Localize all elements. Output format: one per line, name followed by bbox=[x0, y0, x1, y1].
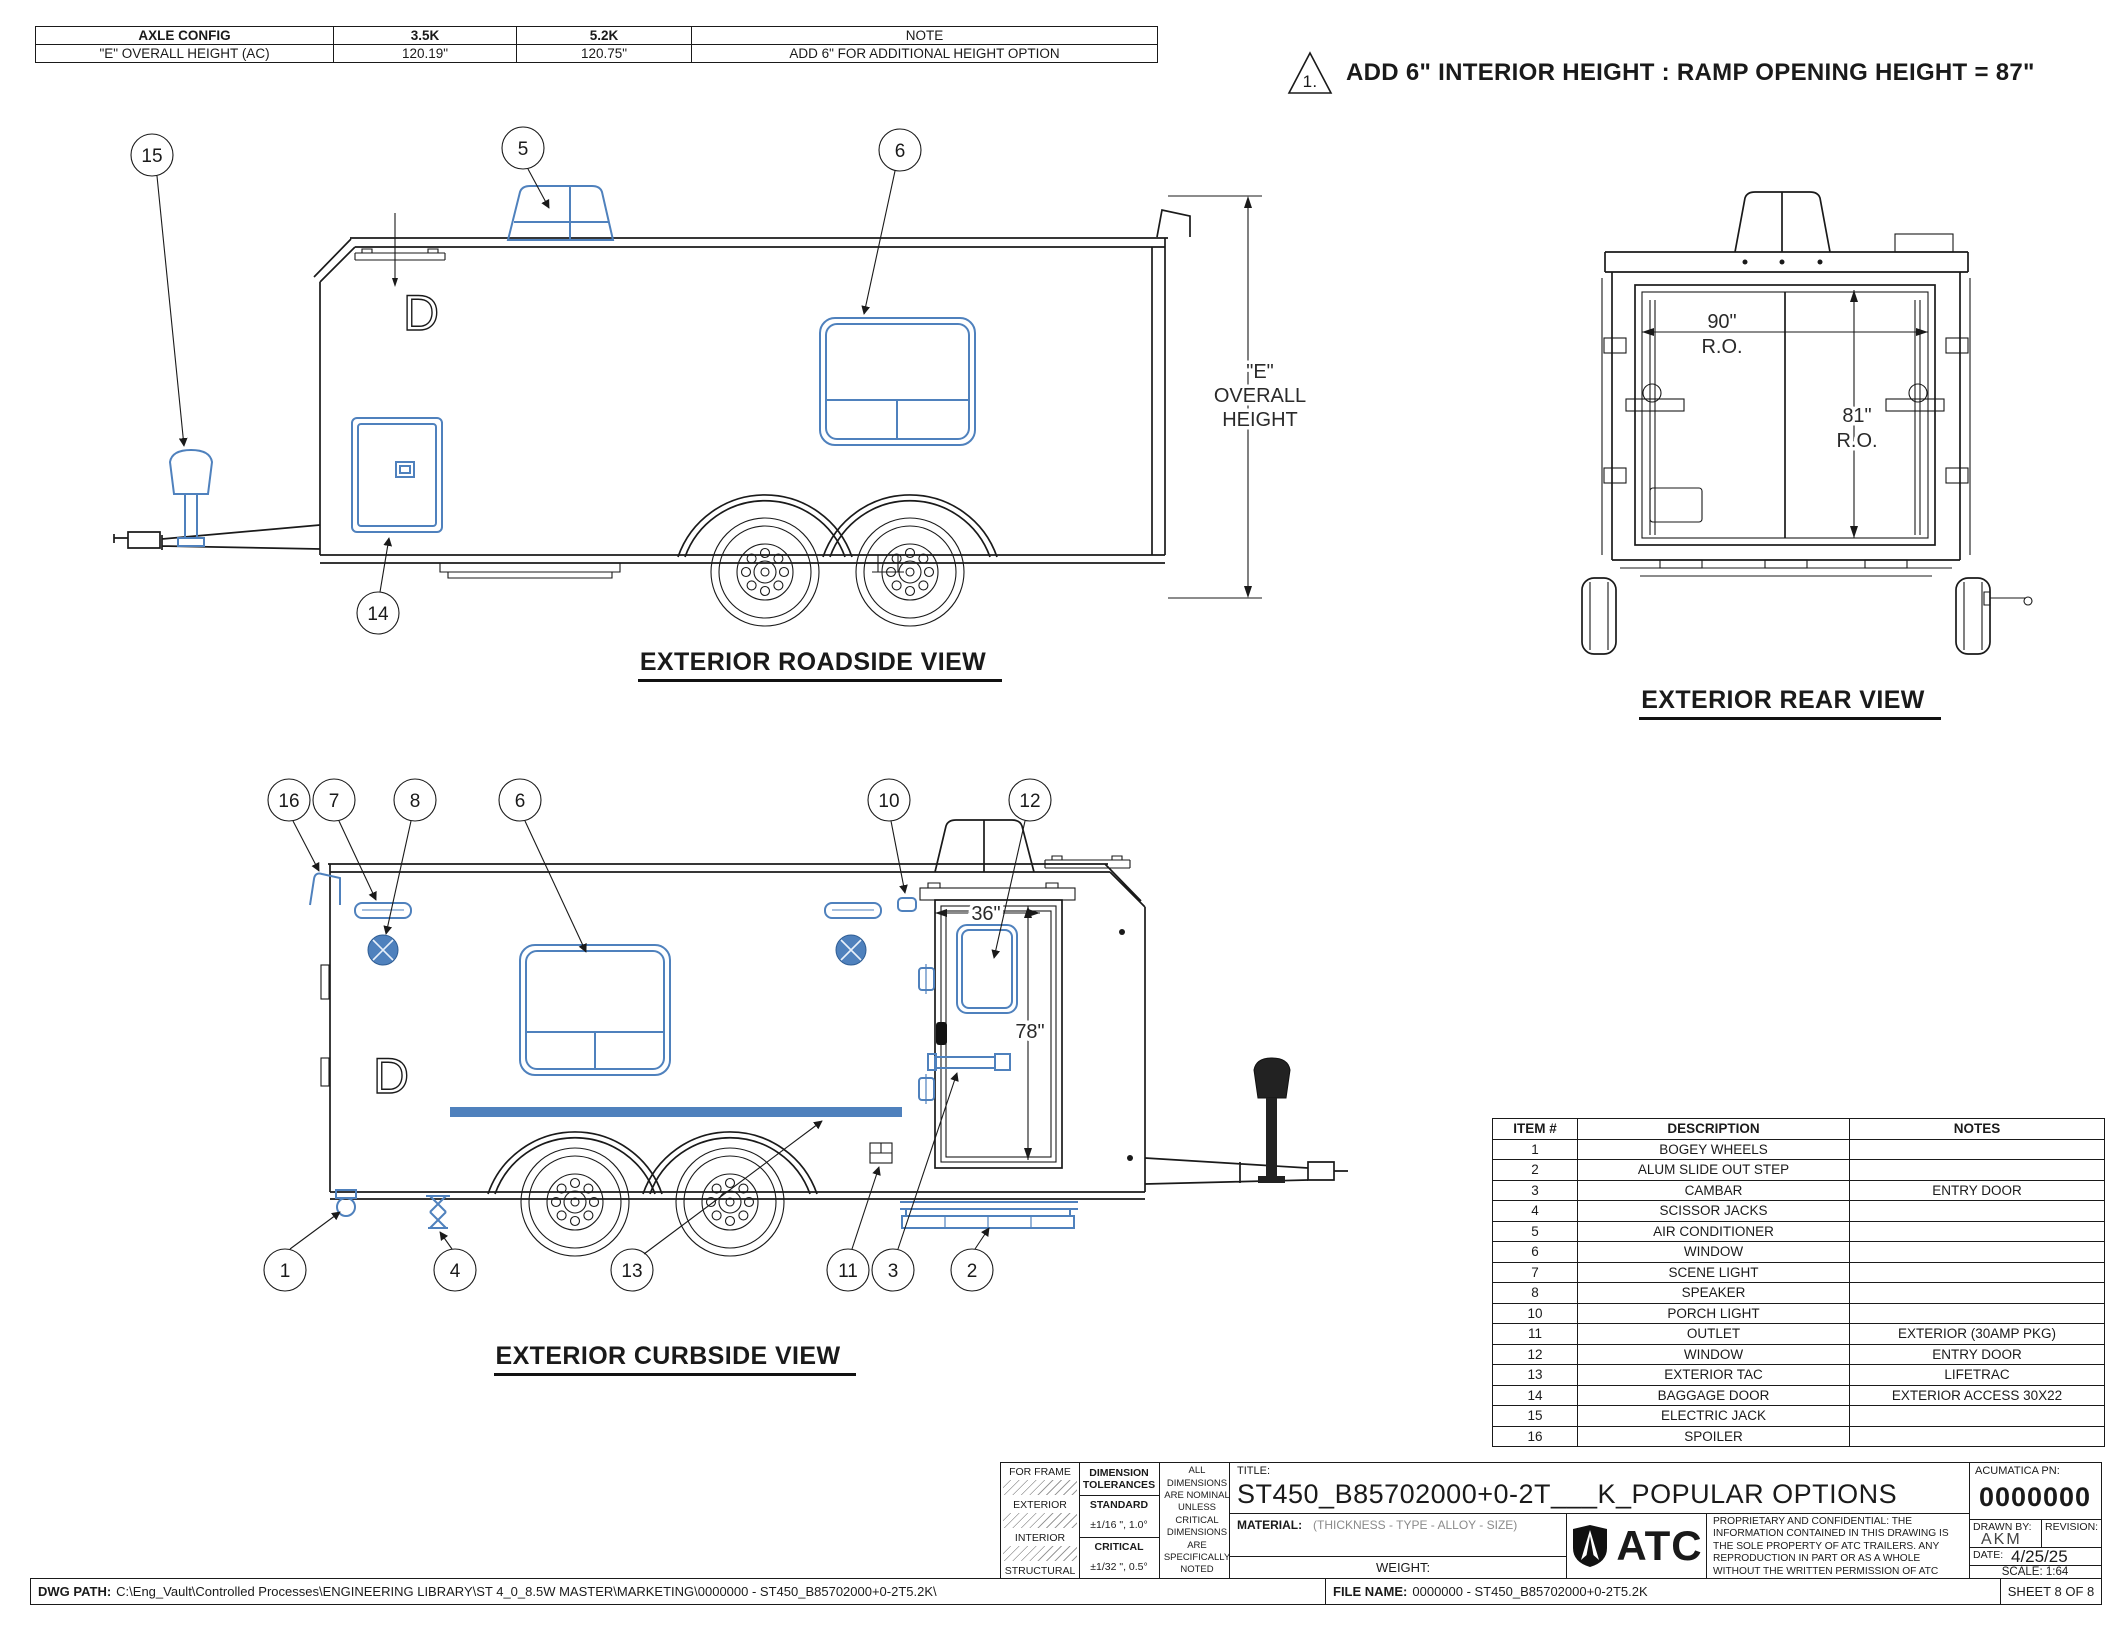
table-row: 16SPOILER bbox=[1493, 1426, 2105, 1447]
table-row: 14BAGGAGE DOOREXTERIOR ACCESS 30X22 bbox=[1493, 1385, 2105, 1406]
item-desc: WINDOW bbox=[1578, 1344, 1850, 1365]
atc-logo: ATC bbox=[1571, 1517, 1703, 1575]
tolerance-critical-value: ±1/32 ", 0.5° bbox=[1079, 1557, 1159, 1577]
acumatica-label: ACUMATICA PN: bbox=[1975, 1465, 2060, 1477]
material-hint: (THICKNESS - TYPE - ALLOY - SIZE) bbox=[1313, 1518, 1517, 1532]
tolerance-standard-label: STANDARD bbox=[1079, 1496, 1159, 1514]
balloon-5: 5 bbox=[518, 139, 529, 160]
balloon-12: 12 bbox=[1019, 791, 1040, 812]
nominal-note: ALL DIMENSIONS ARE NOMINAL UNLESS CRITIC… bbox=[1159, 1463, 1235, 1579]
balloon-7: 7 bbox=[329, 791, 340, 812]
tolerance-critical-label: CRITICAL bbox=[1079, 1538, 1159, 1556]
curbside-view-drawing: D 36" 78" 16 7 8 6 bbox=[200, 760, 1400, 1340]
wheel bbox=[711, 518, 819, 626]
item-desc: SCISSOR JACKS bbox=[1578, 1201, 1850, 1222]
table-row: ITEM # DESCRIPTION NOTES bbox=[1493, 1119, 2105, 1140]
item-desc: ELECTRIC JACK bbox=[1578, 1406, 1850, 1427]
exterior-outlet bbox=[870, 1143, 892, 1163]
table-row: 11OUTLETEXTERIOR (30AMP PKG) bbox=[1493, 1324, 2105, 1345]
balloon-13: 13 bbox=[621, 1261, 642, 1282]
footer-strip: DWG PATH: C:\Eng_Vault\Controlled Proces… bbox=[30, 1578, 2102, 1605]
col-header: AXLE CONFIG bbox=[36, 27, 334, 45]
drawing-title: ST450_B85702000+0-2T___K_POPULAR OPTIONS bbox=[1237, 1479, 1961, 1510]
table-row: 2ALUM SLIDE OUT STEP bbox=[1493, 1160, 2105, 1181]
table-row: 15ELECTRIC JACK bbox=[1493, 1406, 2105, 1427]
item-notes bbox=[1850, 1201, 2105, 1222]
coupler bbox=[1308, 1162, 1348, 1180]
frame-row-label: FOR FRAME bbox=[1001, 1463, 1079, 1480]
item-desc: ALUM SLIDE OUT STEP bbox=[1578, 1160, 1850, 1181]
item-desc: AIR CONDITIONER bbox=[1578, 1221, 1850, 1242]
baggage-door bbox=[352, 418, 442, 532]
balloon-3: 3 bbox=[888, 1261, 899, 1282]
item-notes bbox=[1850, 1160, 2105, 1181]
door-hinges bbox=[919, 964, 934, 1104]
rear-trailer-body bbox=[1582, 192, 2032, 654]
table-row: 12WINDOWENTRY DOOR bbox=[1493, 1344, 2105, 1365]
balloon-2: 2 bbox=[967, 1261, 978, 1282]
balloon-4: 4 bbox=[450, 1261, 461, 1282]
balloon-11: 11 bbox=[838, 1261, 858, 1282]
table-cell: "E" OVERALL HEIGHT (AC) bbox=[36, 45, 334, 63]
table-cell: 120.19" bbox=[334, 45, 517, 63]
item-num: 1 bbox=[1493, 1139, 1578, 1160]
table-row: 1BOGEY WHEELS bbox=[1493, 1139, 2105, 1160]
item-num: 16 bbox=[1493, 1426, 1578, 1447]
dim-width: 90" bbox=[1707, 311, 1736, 333]
item-num: 6 bbox=[1493, 1242, 1578, 1263]
balloon-15: 15 bbox=[141, 146, 162, 167]
cambar bbox=[928, 1054, 1010, 1070]
item-notes: EXTERIOR ACCESS 30X22 bbox=[1850, 1385, 2105, 1406]
table-row: 10PORCH LIGHT bbox=[1493, 1303, 2105, 1324]
balloon-6: 6 bbox=[515, 791, 526, 812]
item-desc: EXTERIOR TAC bbox=[1578, 1365, 1850, 1386]
atc-logo-text: ATC bbox=[1616, 1522, 1702, 1570]
item-desc: PORCH LIGHT bbox=[1578, 1303, 1850, 1324]
item-num: 3 bbox=[1493, 1180, 1578, 1201]
scissor-jack bbox=[426, 1196, 450, 1228]
dim-door-width: 36" bbox=[971, 903, 1000, 925]
balloon-16: 16 bbox=[278, 791, 299, 812]
tolerance-standard-value: ±1/16 ", 1.0° bbox=[1079, 1515, 1159, 1535]
item-notes bbox=[1850, 1242, 2105, 1263]
item-notes: ENTRY DOOR bbox=[1850, 1180, 2105, 1201]
dim-width-ro: R.O. bbox=[1701, 336, 1742, 358]
curbside-trailer-body bbox=[321, 820, 1348, 1199]
title-block: FOR FRAME EXTERIOR INTERIOR STRUCTURAL D… bbox=[1000, 1462, 2102, 1580]
dim-label: "E" bbox=[1246, 361, 1274, 383]
item-notes: EXTERIOR (30AMP PKG) bbox=[1850, 1324, 2105, 1345]
balloon-8: 8 bbox=[410, 791, 421, 812]
frame-row-label: EXTERIOR bbox=[1001, 1496, 1079, 1513]
item-num: 8 bbox=[1493, 1283, 1578, 1304]
table-cell: 120.75" bbox=[517, 45, 692, 63]
frame-row-label: STRUCTURAL bbox=[1001, 1562, 1079, 1579]
item-desc: SPEAKER bbox=[1578, 1283, 1850, 1304]
dim-height: 81" bbox=[1842, 405, 1871, 427]
table-row: 6WINDOW bbox=[1493, 1242, 2105, 1263]
title-label: TITLE: bbox=[1237, 1465, 1270, 1477]
weight-label: WEIGHT: bbox=[1376, 1560, 1430, 1575]
items-table: ITEM # DESCRIPTION NOTES 1BOGEY WHEELS 2… bbox=[1492, 1118, 2105, 1447]
item-desc: OUTLET bbox=[1578, 1324, 1850, 1345]
flag-note-text: ADD 6" INTERIOR HEIGHT : RAMP OPENING HE… bbox=[1346, 59, 2035, 87]
item-num: 7 bbox=[1493, 1262, 1578, 1283]
item-desc: BAGGAGE DOOR bbox=[1578, 1385, 1850, 1406]
item-desc: WINDOW bbox=[1578, 1242, 1850, 1263]
col-header: DESCRIPTION bbox=[1578, 1119, 1850, 1140]
porch-light bbox=[898, 898, 916, 911]
lifetrac-stripe bbox=[450, 1107, 902, 1117]
dim-label: OVERALL bbox=[1214, 385, 1306, 407]
table-cell: ADD 6" FOR ADDITIONAL HEIGHT OPTION bbox=[692, 45, 1158, 63]
item-notes: LIFETRAC bbox=[1850, 1365, 2105, 1386]
flag-number: 1. bbox=[1303, 72, 1318, 91]
item-num: 15 bbox=[1493, 1406, 1578, 1427]
dim-door-height: 78" bbox=[1015, 1021, 1044, 1043]
roadside-trailer-body bbox=[114, 210, 1190, 578]
item-desc: BOGEY WHEELS bbox=[1578, 1139, 1850, 1160]
balloon-10: 10 bbox=[878, 791, 899, 812]
item-desc: SPOILER bbox=[1578, 1426, 1850, 1447]
curbside-window bbox=[520, 945, 670, 1075]
item-desc: CAMBAR bbox=[1578, 1180, 1850, 1201]
axle-config-table: AXLE CONFIG 3.5K 5.2K NOTE "E" OVERALL H… bbox=[35, 26, 1158, 63]
col-header: ITEM # bbox=[1493, 1119, 1578, 1140]
rear-view-title: EXTERIOR REAR VIEW bbox=[1590, 686, 1990, 715]
roadside-spoiler bbox=[1157, 210, 1190, 237]
balloon-14: 14 bbox=[367, 604, 389, 625]
proprietary-note: PROPRIETARY AND CONFIDENTIAL: THE INFORM… bbox=[1713, 1516, 1963, 1576]
drawing-sheet: AXLE CONFIG 3.5K 5.2K NOTE "E" OVERALL H… bbox=[0, 0, 2112, 1632]
item-num: 5 bbox=[1493, 1221, 1578, 1242]
atc-shield-icon bbox=[1571, 1524, 1609, 1568]
table-row: 5AIR CONDITIONER bbox=[1493, 1221, 2105, 1242]
frame-row-label: INTERIOR bbox=[1001, 1529, 1079, 1546]
scale-label: SCALE: 1:64 bbox=[1969, 1565, 2101, 1579]
wheel bbox=[676, 1148, 784, 1256]
col-header: NOTE bbox=[692, 27, 1158, 45]
table-row: 7SCENE LIGHT bbox=[1493, 1262, 2105, 1283]
file-name: FILE NAME: 0000000 - ST450_B85702000+0-2… bbox=[1325, 1579, 2000, 1604]
table-row: 4SCISSOR JACKS bbox=[1493, 1201, 2105, 1222]
hatch-band bbox=[1003, 1513, 1077, 1528]
table-row: "E" OVERALL HEIGHT (AC) 120.19" 120.75" … bbox=[36, 45, 1158, 63]
air-conditioner bbox=[1735, 192, 1830, 252]
item-notes bbox=[1850, 1139, 2105, 1160]
spoiler bbox=[310, 874, 340, 905]
item-notes bbox=[1850, 1283, 2105, 1304]
item-num: 4 bbox=[1493, 1201, 1578, 1222]
curbside-view-title: EXTERIOR CURBSIDE VIEW bbox=[425, 1342, 925, 1371]
door-window bbox=[957, 925, 1017, 1013]
item-num: 14 bbox=[1493, 1385, 1578, 1406]
file-name-label: FILE NAME: bbox=[1333, 1584, 1407, 1599]
dwg-path-label: DWG PATH: bbox=[38, 1584, 111, 1599]
roadside-view-drawing: D "E" OVERALL HEIGHT 15 5 6 14 bbox=[100, 110, 1320, 650]
item-num: 13 bbox=[1493, 1365, 1578, 1386]
d-marking: D bbox=[373, 1048, 409, 1104]
sheet-number: SHEET 8 OF 8 bbox=[2000, 1579, 2101, 1604]
item-num: 10 bbox=[1493, 1303, 1578, 1324]
scene-lights bbox=[355, 903, 881, 918]
rear-view-drawing: 90" R.O. 81" R.O. bbox=[1580, 150, 2040, 660]
slide-out-step bbox=[900, 1202, 1078, 1228]
col-header: 3.5K bbox=[334, 27, 517, 45]
roadside-window bbox=[820, 318, 975, 445]
wheel bbox=[521, 1148, 629, 1256]
item-desc: SCENE LIGHT bbox=[1578, 1262, 1850, 1283]
balloon-leaders bbox=[264, 779, 1051, 1291]
item-notes bbox=[1850, 1426, 2105, 1447]
item-notes bbox=[1850, 1303, 2105, 1324]
dwg-path-value: C:\Eng_Vault\Controlled Processes\ENGINE… bbox=[116, 1584, 936, 1599]
d-marking: D bbox=[403, 285, 439, 341]
hatch-band bbox=[1003, 1546, 1077, 1561]
air-conditioner bbox=[508, 186, 613, 240]
balloon-leaders bbox=[131, 127, 921, 634]
balloon-1: 1 bbox=[280, 1261, 291, 1282]
table-row: 8SPEAKER bbox=[1493, 1283, 2105, 1304]
item-notes bbox=[1850, 1406, 2105, 1427]
item-notes bbox=[1850, 1221, 2105, 1242]
revision-label: REVISION: bbox=[2045, 1521, 2098, 1533]
item-num: 11 bbox=[1493, 1324, 1578, 1345]
license-plate bbox=[1650, 488, 1702, 522]
flag-note: 1. ADD 6" INTERIOR HEIGHT : RAMP OPENING… bbox=[1286, 50, 2035, 96]
door-handle bbox=[936, 1022, 947, 1045]
table-row: 13EXTERIOR TACLIFETRAC bbox=[1493, 1365, 2105, 1386]
table-row: AXLE CONFIG 3.5K 5.2K NOTE bbox=[36, 27, 1158, 45]
acumatica-value: 0000000 bbox=[1969, 1477, 2101, 1517]
col-header: 5.2K bbox=[517, 27, 692, 45]
date-label: DATE: bbox=[1973, 1549, 2003, 1561]
electric-jack bbox=[170, 450, 212, 546]
dwg-path: DWG PATH: C:\Eng_Vault\Controlled Proces… bbox=[31, 1579, 1325, 1604]
col-header: NOTES bbox=[1850, 1119, 2105, 1140]
hatch-band bbox=[1003, 1480, 1077, 1495]
item-notes: ENTRY DOOR bbox=[1850, 1344, 2105, 1365]
dim-label: HEIGHT bbox=[1222, 409, 1298, 431]
item-notes bbox=[1850, 1262, 2105, 1283]
material-label: MATERIAL: bbox=[1237, 1518, 1302, 1532]
file-name-value: 0000000 - ST450_B85702000+0-2T5.2K bbox=[1412, 1584, 1647, 1599]
triangle-flag-icon: 1. bbox=[1286, 50, 1334, 96]
tolerance-header: DIMENSION TOLERANCES bbox=[1079, 1463, 1159, 1495]
dim-height-ro: R.O. bbox=[1836, 430, 1877, 452]
item-num: 2 bbox=[1493, 1160, 1578, 1181]
table-row: 3CAMBARENTRY DOOR bbox=[1493, 1180, 2105, 1201]
item-num: 12 bbox=[1493, 1344, 1578, 1365]
coupler bbox=[114, 532, 160, 548]
balloon-6: 6 bbox=[895, 141, 906, 162]
date-value: 4/25/25 bbox=[2011, 1547, 2068, 1567]
roadside-view-title: EXTERIOR ROADSIDE VIEW bbox=[570, 648, 1070, 677]
roadside-step bbox=[440, 563, 620, 578]
